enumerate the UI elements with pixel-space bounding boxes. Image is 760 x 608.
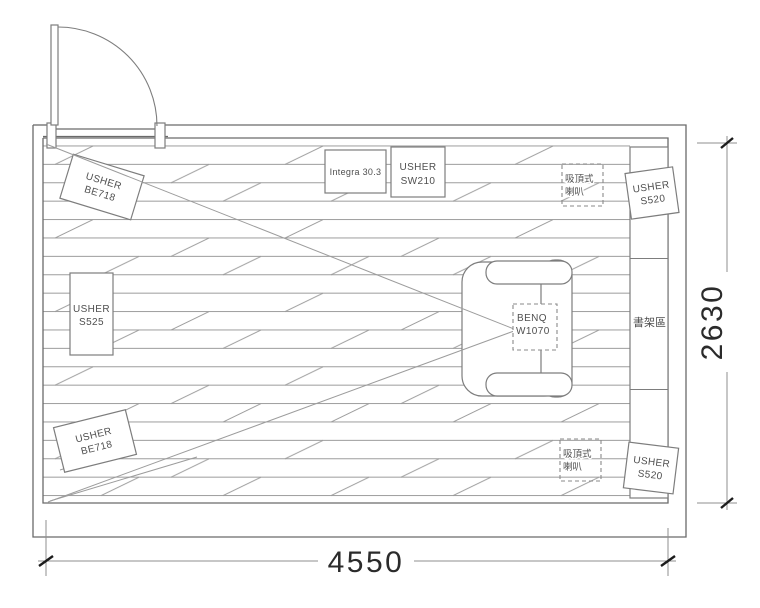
center-speaker-model: S525 — [79, 317, 104, 328]
ceiling-speaker-bottom-line2: 喇叭 — [563, 461, 583, 473]
subwoofer-brand: USHER — [399, 162, 436, 173]
armchair-armrest-bottom — [486, 373, 572, 396]
height-dimension-text: 2630 — [696, 284, 729, 361]
projector-box: BENQ W1070 — [513, 304, 557, 350]
door — [43, 25, 168, 148]
width-dimension: 4550 — [38, 520, 676, 579]
ceiling-speaker-bottom-line1: 吸頂式 — [563, 448, 592, 460]
door-leaf — [51, 25, 58, 125]
width-dimension-text: 4550 — [328, 546, 405, 579]
floor-plan-drawing: 書架區 USHER BE718 USHER BE718 USHER S525 I… — [0, 0, 760, 608]
door-swing-arc — [58, 27, 157, 126]
door-jamb-left — [47, 123, 56, 148]
projector-model: W1070 — [516, 326, 550, 337]
height-dimension: 2630 — [696, 136, 737, 510]
surround-bottom-speaker-box: USHER S520 — [623, 442, 678, 494]
subwoofer-box: USHER SW210 — [391, 147, 445, 197]
bookshelf-area-label: 書架區 — [633, 315, 666, 329]
amplifier-box: Integra 30.3 — [325, 150, 386, 193]
amplifier-label: Integra 30.3 — [330, 167, 382, 177]
center-speaker-brand: USHER — [73, 304, 110, 315]
subwoofer-model: SW210 — [401, 176, 436, 187]
center-speaker-box: USHER S525 — [70, 273, 113, 355]
door-jamb-right — [155, 123, 165, 148]
floor-plan-page: 書架區 USHER BE718 USHER BE718 USHER S525 I… — [0, 0, 760, 608]
ceiling-speaker-top-line1: 吸頂式 — [565, 173, 594, 185]
ceiling-speaker-top-line2: 喇叭 — [565, 186, 585, 198]
surround-top-speaker-box: USHER S520 — [625, 167, 679, 219]
projector-brand: BENQ — [517, 313, 547, 324]
armchair-armrest-top — [486, 261, 572, 284]
